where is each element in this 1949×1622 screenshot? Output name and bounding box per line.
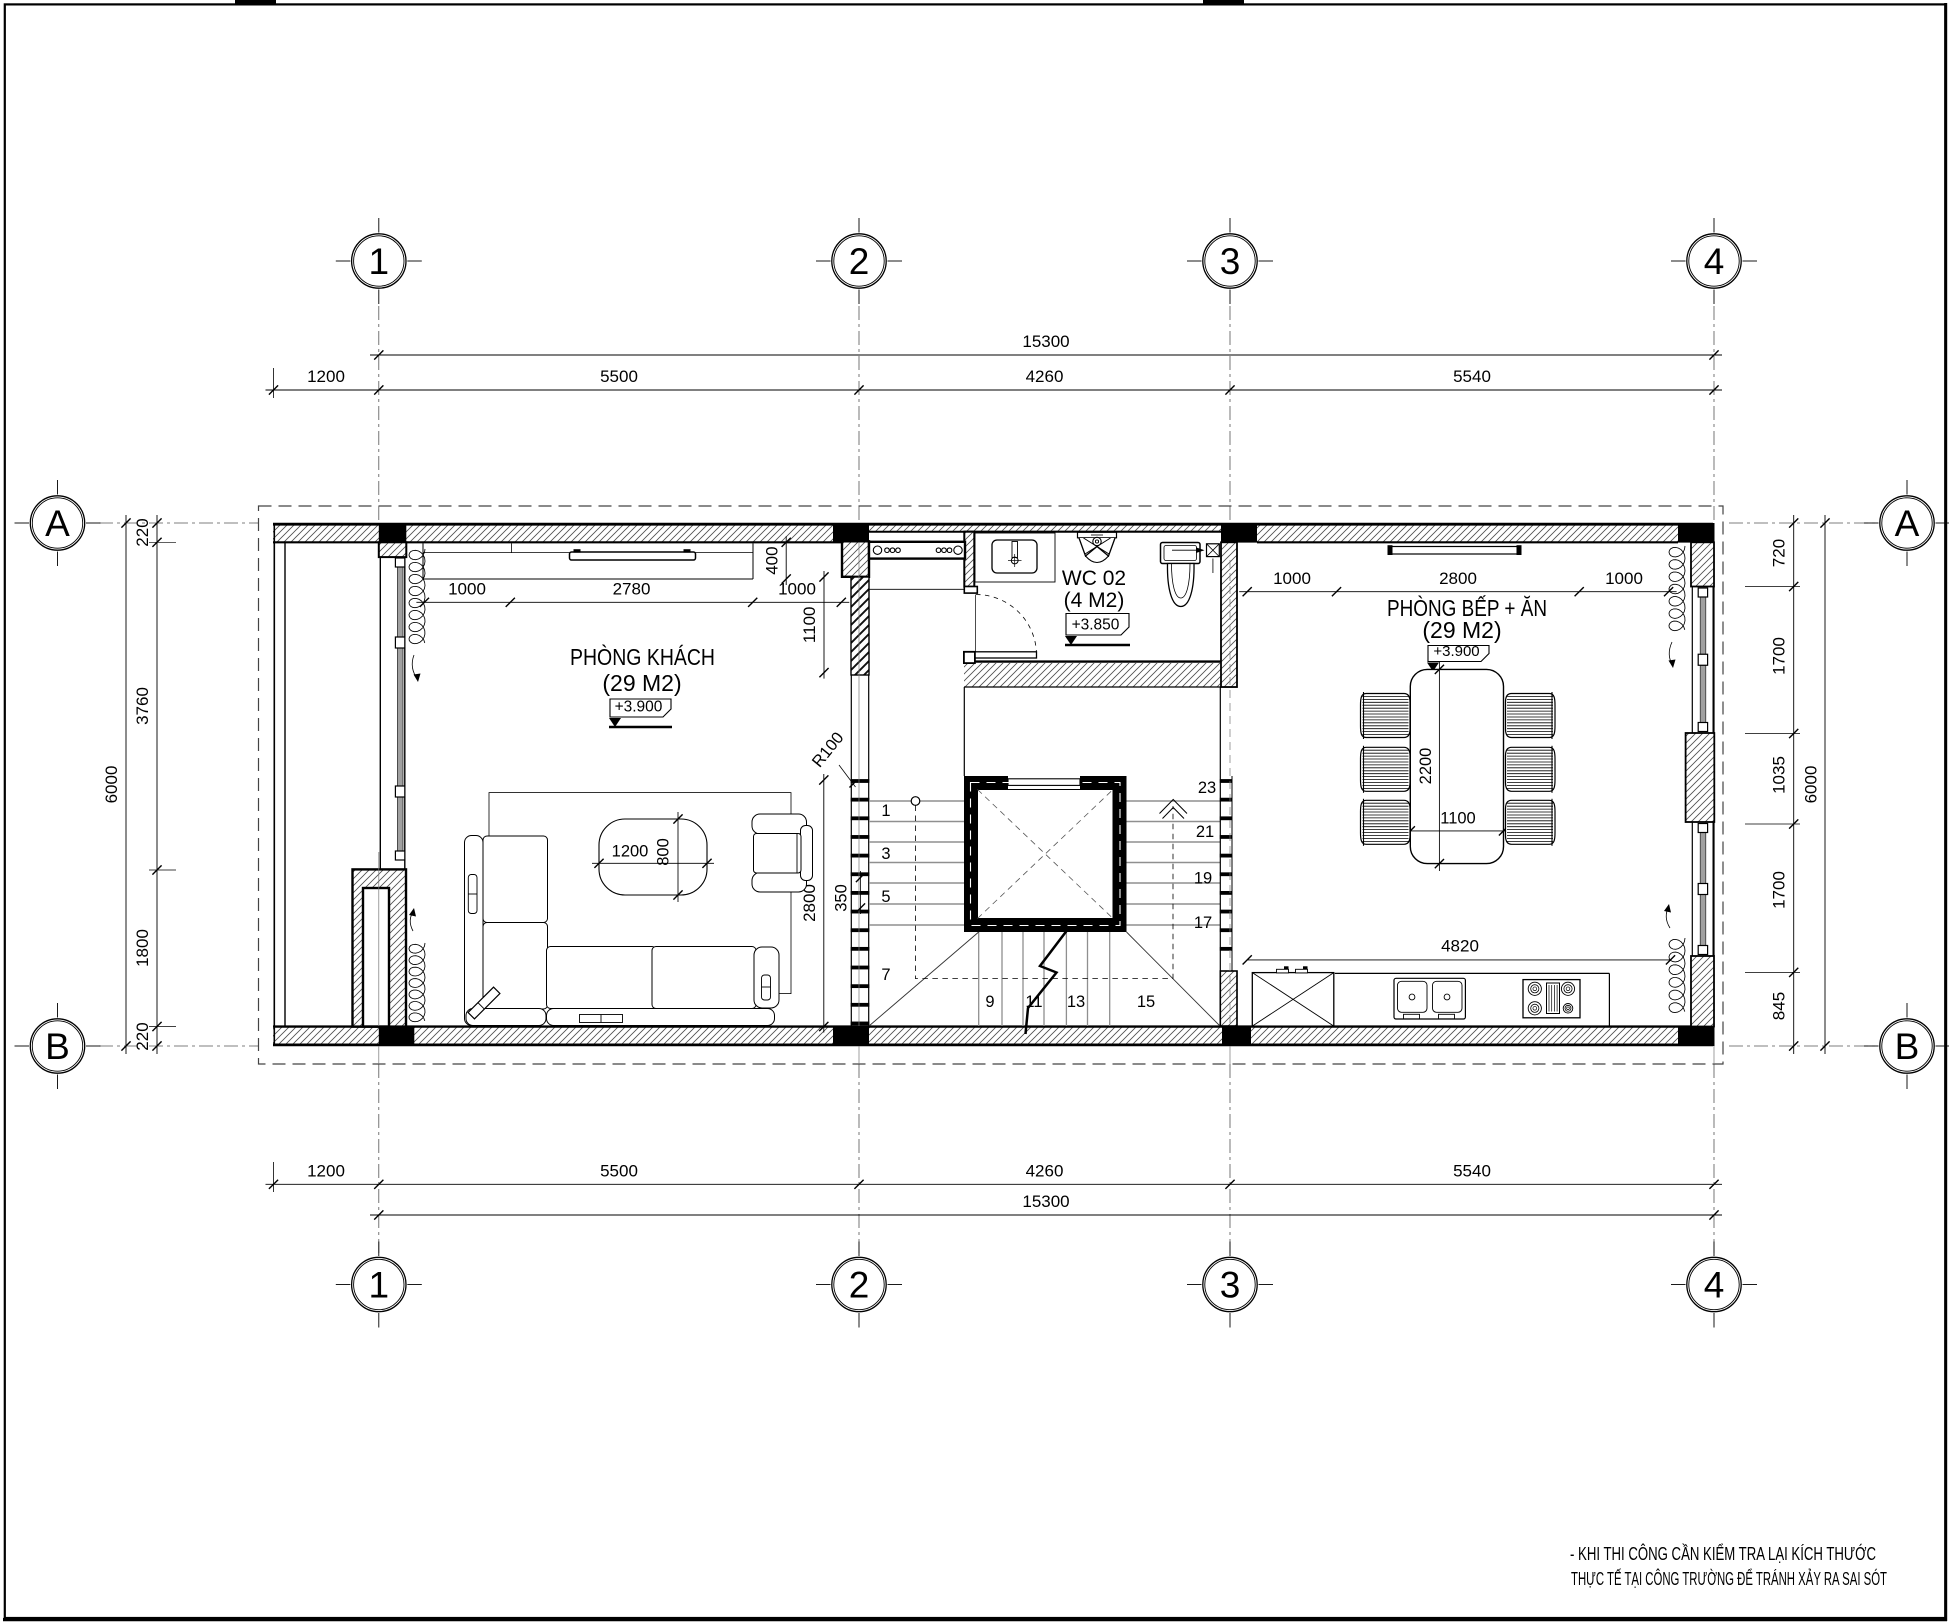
svg-text:4260: 4260 — [1026, 1162, 1064, 1181]
svg-text:1200: 1200 — [612, 843, 649, 861]
svg-text:(29 M2): (29 M2) — [602, 670, 681, 696]
svg-text:1700: 1700 — [1770, 637, 1789, 675]
svg-text:3760: 3760 — [133, 687, 152, 725]
svg-text:6000: 6000 — [1802, 766, 1821, 804]
svg-text:2: 2 — [849, 1265, 870, 1306]
svg-text:4: 4 — [1704, 241, 1725, 282]
svg-text:15: 15 — [1137, 993, 1155, 1011]
svg-text:1700: 1700 — [1770, 871, 1789, 909]
svg-text:1000: 1000 — [448, 580, 486, 599]
svg-text:2: 2 — [849, 241, 870, 282]
svg-text:1: 1 — [369, 241, 390, 282]
svg-text:2200: 2200 — [1417, 748, 1435, 785]
svg-text:1000: 1000 — [1605, 569, 1643, 588]
svg-text:WC 02: WC 02 — [1062, 567, 1126, 590]
svg-text:4: 4 — [1704, 1265, 1725, 1306]
svg-text:5500: 5500 — [600, 1162, 638, 1181]
svg-text:1: 1 — [881, 802, 890, 820]
svg-text:23: 23 — [1198, 779, 1216, 797]
svg-text:1100: 1100 — [800, 607, 819, 644]
svg-text:2800: 2800 — [1439, 569, 1477, 588]
svg-text:21: 21 — [1196, 823, 1214, 841]
svg-text:7: 7 — [881, 966, 890, 984]
svg-text:17: 17 — [1194, 914, 1212, 932]
svg-text:1200: 1200 — [307, 1162, 345, 1181]
svg-text:3: 3 — [881, 845, 890, 863]
svg-text:5540: 5540 — [1453, 367, 1491, 386]
svg-text:4260: 4260 — [1026, 367, 1064, 386]
svg-text:1035: 1035 — [1770, 756, 1789, 794]
svg-text:5500: 5500 — [600, 367, 638, 386]
svg-text:5540: 5540 — [1453, 1162, 1491, 1181]
svg-text:+3.900: +3.900 — [1433, 643, 1479, 660]
svg-text:(4 M2): (4 M2) — [1064, 589, 1125, 612]
svg-text:B: B — [45, 1026, 70, 1067]
svg-text:5: 5 — [881, 888, 890, 906]
svg-text:+3.900: +3.900 — [615, 699, 663, 716]
svg-text:15300: 15300 — [1022, 1192, 1069, 1211]
svg-text:3: 3 — [1220, 241, 1241, 282]
svg-text:2780: 2780 — [613, 580, 651, 599]
svg-text:19: 19 — [1194, 870, 1212, 888]
svg-text:A: A — [1895, 503, 1920, 544]
svg-text:15300: 15300 — [1022, 332, 1069, 351]
svg-text:- KHI THI CÔNG CẦN KIỂM TRA LẠ: - KHI THI CÔNG CẦN KIỂM TRA LẠI KÍCH THƯ… — [1570, 1543, 1876, 1564]
svg-text:1100: 1100 — [1440, 810, 1475, 828]
svg-text:9: 9 — [985, 993, 994, 1011]
svg-text:800: 800 — [655, 838, 673, 866]
svg-text:6000: 6000 — [102, 766, 121, 804]
svg-text:1000: 1000 — [1273, 569, 1311, 588]
svg-text:845: 845 — [1770, 992, 1789, 1020]
svg-text:1: 1 — [369, 1265, 390, 1306]
svg-text:1800: 1800 — [133, 929, 152, 967]
svg-text:B: B — [1895, 1026, 1920, 1067]
svg-text:4820: 4820 — [1441, 937, 1479, 956]
svg-text:350: 350 — [833, 884, 851, 912]
svg-text:A: A — [45, 503, 70, 544]
svg-text:13: 13 — [1067, 993, 1085, 1011]
svg-text:3: 3 — [1220, 1265, 1241, 1306]
svg-text:1200: 1200 — [307, 367, 345, 386]
svg-text:400: 400 — [763, 546, 782, 574]
svg-text:+3.850: +3.850 — [1072, 617, 1120, 634]
svg-text:720: 720 — [1770, 539, 1789, 567]
svg-text:PHÒNG KHÁCH: PHÒNG KHÁCH — [570, 644, 715, 670]
svg-text:THỰC TẾ TẠI CÔNG TRƯỜNG ĐỂ TRÁ: THỰC TẾ TẠI CÔNG TRƯỜNG ĐỂ TRÁNH XẢY RA … — [1571, 1568, 1887, 1589]
svg-text:(29 M2): (29 M2) — [1422, 617, 1501, 643]
